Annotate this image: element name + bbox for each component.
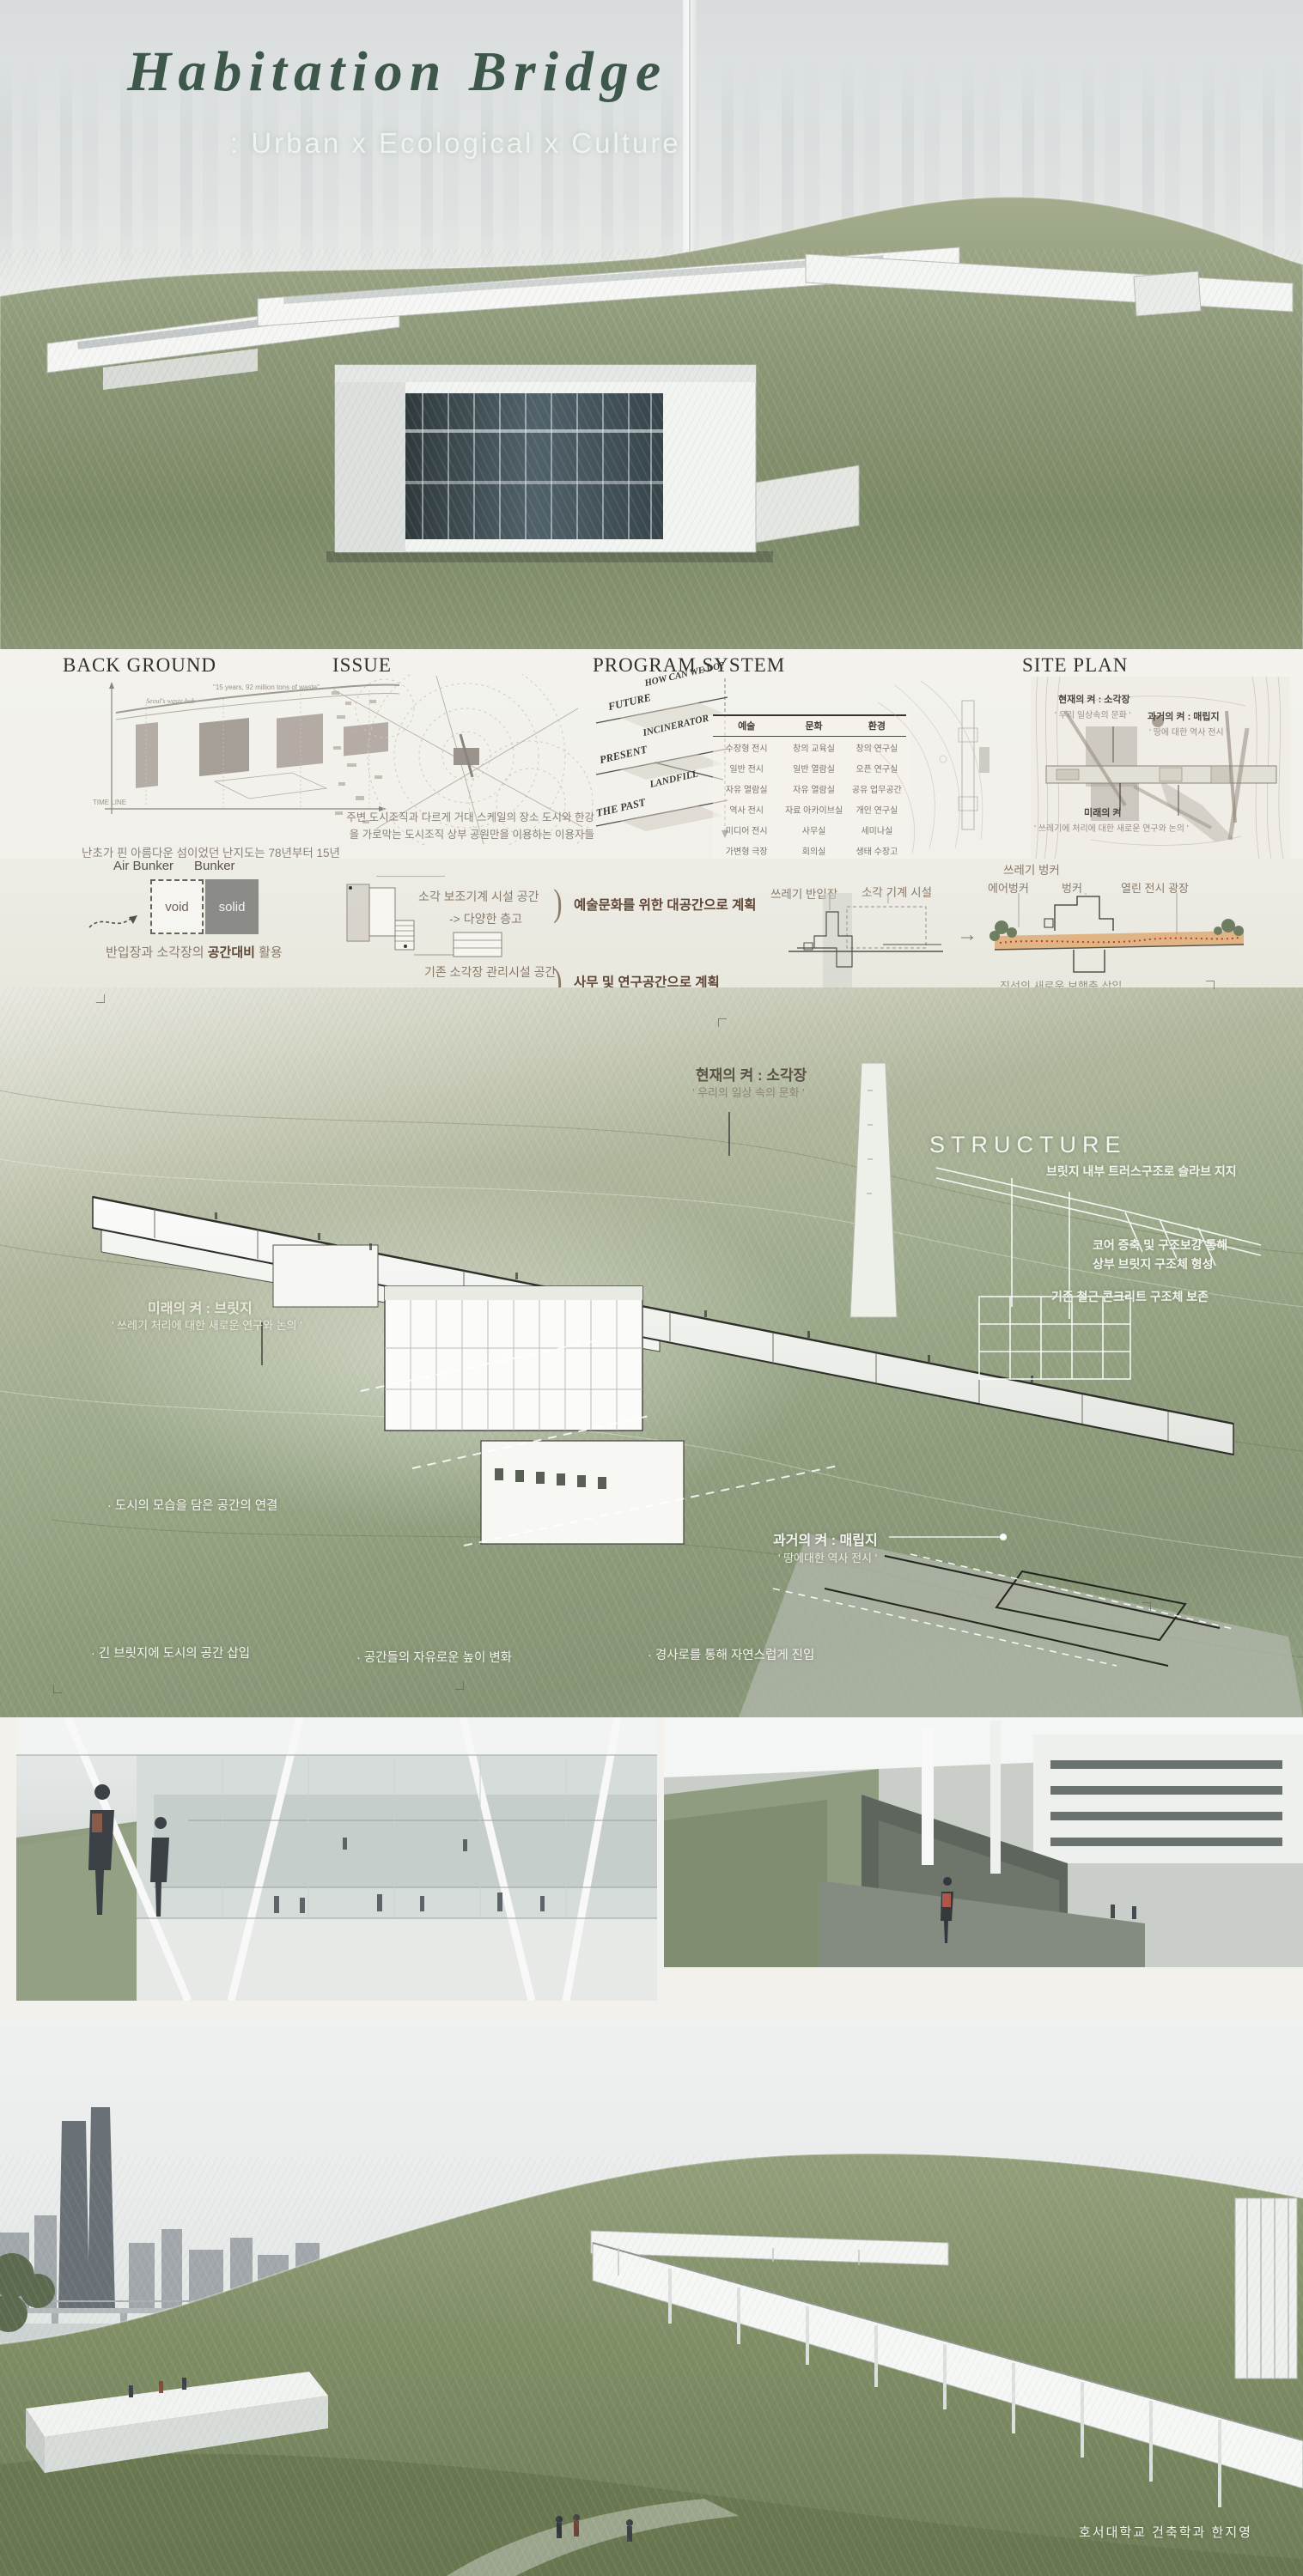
- solid-box: solid: [205, 879, 259, 934]
- crop-mark: [455, 1681, 464, 1690]
- svg-text:→: →: [957, 923, 977, 946]
- structure-note-concrete: 기존 철근 콘크리트 구조체 보존: [1051, 1288, 1209, 1305]
- air-bunker-label: Air Bunker: [113, 859, 174, 873]
- presentation-board: Habitation Bridge : Urban x Ecological x…: [0, 0, 1303, 2576]
- future-layer-sub: ' 쓰레기 처리에 대한 새로운 연구와 논의 ': [112, 1316, 302, 1333]
- void-label: void: [165, 900, 189, 914]
- siteplan-present-sub: ' 우리 일상속의 문화 ': [1055, 708, 1131, 720]
- back].heading: BACK GROUND: [63, 654, 216, 677]
- siteplan-present-title: 현재의 켜 : 소각장: [1058, 692, 1130, 706]
- crop-mark: [53, 1685, 62, 1693]
- present-layer-sub: ' 우리의 일상 속의 문화 ': [692, 1084, 805, 1100]
- axon-drawing: [0, 987, 1303, 1717]
- hero-bottom-render: 호서대학교 건축학과 한지영: [0, 2018, 1303, 2576]
- siteplan-past-title: 과거의 켜 : 매립지: [1148, 709, 1220, 723]
- past-layer-title: 과거의 켜 : 매립지: [773, 1528, 878, 1549]
- future-layer-title: 미래의 켜 : 브릿지: [148, 1297, 253, 1317]
- siteplan-future-sub: ' 쓰레기에 처리에 대한 새로운 연구와 논의 ': [1034, 821, 1189, 834]
- bunker-kr-label: 벙커: [1062, 879, 1082, 896]
- aux-result: 예술문화를 위한 대공간으로 계획: [574, 895, 757, 914]
- aux-bracket: ): [553, 881, 562, 925]
- waste-quote-label: "15 years, 92 million tons of waste": [213, 683, 320, 691]
- siteplan-past-sub: ' 땅에 대한 역사 전시 ': [1149, 725, 1227, 738]
- program-plan-sketch: [869, 677, 998, 857]
- present-layer-title: 현재의 켜 : 소각장: [696, 1063, 807, 1084]
- siteplan-future-title: 미래의 켜: [1084, 805, 1122, 819]
- contrast-pre: 반입장과 소각장의: [106, 945, 208, 960]
- bullet-ramp: · 경사로를 통해 자연스럽게 진입: [648, 1645, 814, 1663]
- courtyard-render-photo: [664, 1717, 1303, 1967]
- crop-mark: [96, 994, 105, 1003]
- poster-subtitle: : Urban x Ecological x Culture: [230, 127, 681, 160]
- crop-mark: [1206, 981, 1215, 989]
- bullet-connect: · 도시의 모습을 담은 공간의 연결: [107, 1496, 277, 1514]
- crop-mark: [718, 1018, 727, 1027]
- bullet-insert: · 긴 브릿지에 도시의 공간 삽입: [91, 1643, 250, 1662]
- open-plaza-label: 열린 전시 광장: [1121, 879, 1189, 896]
- waste-hub-label: Seoul's waste hub: [146, 697, 195, 705]
- interior-render-photo: [16, 1717, 657, 2001]
- past-layer-sub: ' 땅에대한 역사 전시 ': [778, 1549, 877, 1565]
- structure-note-core: 코어 증축 및 구조보강 통해 상부 브릿지 구조체 형성: [1093, 1236, 1227, 1273]
- structure-heading: STRUCTURE: [929, 1132, 1127, 1158]
- structure-note-truss: 브릿지 내부 트러스구조로 슬라브 지지: [1046, 1163, 1237, 1180]
- solid-label: solid: [219, 900, 246, 914]
- mgmt-line1: 기존 소각장 관리시설 공간: [424, 963, 556, 981]
- squiggle-arrow-icon: [86, 902, 155, 936]
- contrast-post: 활용: [255, 945, 283, 960]
- aux-line2: -> 다양한 층고: [449, 910, 522, 927]
- siteplan-heading: SITE PLAN: [1022, 654, 1128, 677]
- aux-line1: 소각 보조기계 시설 공간: [418, 888, 539, 905]
- issue-paragraph: 주변 도시조직과 다르게 거대 스케일의 장소 도시와 한강을 가로막는 도시조…: [344, 809, 594, 843]
- timeline-label: TIME LINE: [93, 799, 126, 806]
- hero-top-render: Habitation Bridge : Urban x Ecological x…: [0, 0, 1303, 651]
- bullet-height: · 공간들의 자유로운 높이 변화: [356, 1648, 512, 1666]
- air-bunker-kr-label: 에어벙커: [988, 879, 1029, 896]
- crop-mark: [1142, 1602, 1151, 1611]
- poster-title: Habitation Bridge: [127, 39, 667, 105]
- bunker-label: Bunker: [194, 859, 235, 873]
- contrast-caption: 반입장과 소각장의 공간대비 활용: [106, 943, 283, 961]
- void-box: void: [150, 879, 204, 934]
- contrast-bold: 공간대비: [208, 945, 255, 960]
- credit-text: 호서대학교 건축학과 한지영: [1079, 2523, 1252, 2541]
- grass-texture: [0, 249, 1303, 651]
- waste-bunker-label: 쓰레기 벙커: [1003, 860, 1060, 878]
